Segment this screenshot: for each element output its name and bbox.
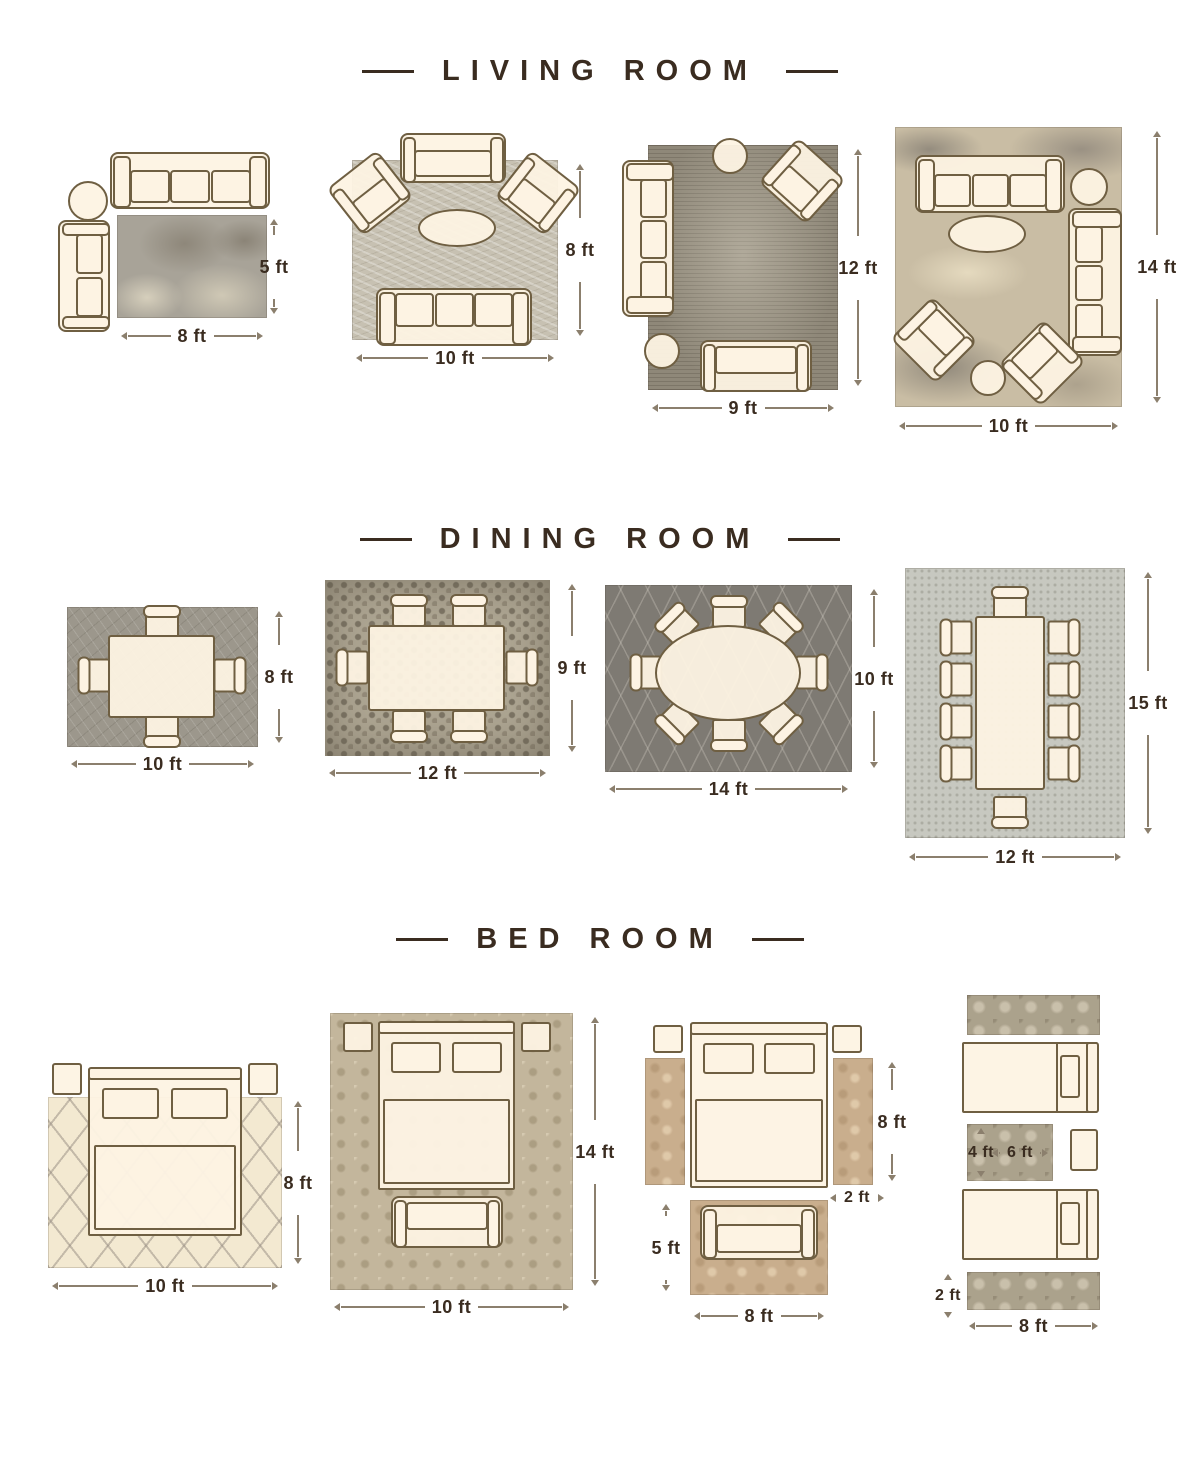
bed-room-section-title: BED ROOM <box>0 923 1200 956</box>
dining-table-icon <box>108 635 215 718</box>
chair-icon <box>452 710 486 737</box>
bed-room-layout-1: 8 ft 10 ft <box>40 1050 305 1302</box>
bench-icon <box>391 1196 503 1248</box>
round-side-table-icon <box>68 181 108 221</box>
title-dash <box>396 938 448 941</box>
loveseat-icon <box>700 340 812 392</box>
runner-rug-icon <box>833 1058 873 1185</box>
twin-bed-icon <box>962 1189 1098 1260</box>
sofa-3seat-icon <box>1068 208 1122 356</box>
rug-height-dimension: 8 ft <box>568 160 592 340</box>
chair-icon <box>946 621 973 655</box>
nightstand-icon <box>343 1022 373 1052</box>
nightstand-icon <box>832 1025 862 1053</box>
chair-icon <box>1048 747 1075 781</box>
rug-height-dimension: 14 ft <box>1145 127 1169 407</box>
runner-rug-icon <box>645 1058 685 1185</box>
oval-coffee-table-icon <box>948 215 1026 253</box>
rug-8x5-icon <box>117 215 267 318</box>
chair-icon <box>84 659 111 693</box>
bed-side-dimension: 8 ft <box>880 1058 904 1185</box>
runner-rug-icon <box>967 995 1100 1035</box>
title-dash <box>362 70 414 73</box>
bed-icon <box>88 1068 242 1236</box>
rug-width-dimension: 9 ft <box>648 397 838 419</box>
chair-icon <box>946 705 973 739</box>
rug-width-dimension: 10 ft <box>67 753 258 775</box>
section-title-text: DINING ROOM <box>440 523 761 556</box>
dining-table-icon <box>368 625 505 711</box>
between-rug-width-dimension: 6 ft <box>988 1142 1052 1164</box>
foot-rug-height-dimension: 5 ft <box>654 1200 678 1295</box>
chair-icon <box>392 600 426 627</box>
loveseat-icon <box>400 133 506 183</box>
title-dash <box>786 70 838 73</box>
sofa-3seat-icon <box>915 155 1065 213</box>
rug-width-dimension: 10 ft <box>895 415 1122 437</box>
bed-room-layout-2: 14 ft 10 ft <box>325 1000 610 1322</box>
chair-icon <box>993 796 1027 823</box>
chair-icon <box>342 651 369 685</box>
nightstand-icon <box>248 1063 278 1095</box>
chair-icon <box>392 710 426 737</box>
dining-table-icon <box>975 616 1045 790</box>
runner-width-dimension: 2 ft <box>826 1187 884 1209</box>
dining-room-layout-4: 15 ft 12 ft <box>900 558 1170 870</box>
sofa-3seat-icon <box>622 160 674 317</box>
dining-room-section-title: DINING ROOM <box>0 523 1200 556</box>
rug-width-dimension: 10 ft <box>48 1275 282 1297</box>
section-title-text: LIVING ROOM <box>442 55 758 88</box>
chair-icon <box>1048 705 1075 739</box>
title-dash <box>752 938 804 941</box>
rug-height-dimension: 8 ft <box>267 607 291 747</box>
rug-width-dimension: 10 ft <box>352 347 558 369</box>
rug-height-dimension: 12 ft <box>846 145 870 390</box>
rug-size-guide: LIVING ROOM 5 ft 8 ft 8 ft 10 ft 12 ft 9… <box>0 0 1200 1467</box>
dining-room-layout-3: 10 ft 14 ft <box>600 575 885 800</box>
rug-width-dimension: 8 ft <box>117 325 267 347</box>
rug-height-dimension: 15 ft <box>1136 568 1160 838</box>
settee-icon <box>700 1205 818 1260</box>
round-ottoman-icon <box>644 333 680 369</box>
nightstand-icon <box>1070 1129 1098 1171</box>
living-room-layout-4: 14 ft 10 ft <box>890 113 1185 448</box>
rug-height-dimension: 8 ft <box>286 1097 310 1268</box>
round-ottoman-icon <box>1070 168 1108 206</box>
bed-room-layout-4: 4 ft 6 ft 2 ft 8 ft <box>930 985 1175 1335</box>
chair-icon <box>712 719 746 746</box>
oval-dining-table-icon <box>655 625 801 721</box>
chair-icon <box>946 663 973 697</box>
sofa-3seat-icon <box>110 152 270 209</box>
rug-width-dimension: 14 ft <box>605 778 852 800</box>
rug-height-dimension: 10 ft <box>862 585 886 772</box>
chair-icon <box>1048 621 1075 655</box>
runner-width-dimension: 2 ft <box>936 1270 960 1312</box>
chair-icon <box>452 600 486 627</box>
chair-icon <box>145 611 179 638</box>
rug-width-dimension: 12 ft <box>905 846 1125 868</box>
nightstand-icon <box>521 1022 551 1052</box>
rug-height-dimension: 9 ft <box>560 580 584 756</box>
section-title-text: BED ROOM <box>476 923 724 956</box>
living-room-layout-1: 5 ft 8 ft <box>50 145 305 360</box>
dining-room-layout-1: 8 ft 10 ft <box>55 595 305 780</box>
nightstand-icon <box>653 1025 683 1053</box>
living-room-layout-2: 8 ft 10 ft <box>330 125 600 375</box>
sofa-3seat-icon <box>376 288 532 346</box>
title-dash <box>360 538 412 541</box>
nightstand-icon <box>52 1063 82 1095</box>
loveseat-icon <box>58 220 110 332</box>
chair-icon <box>145 715 179 742</box>
twin-bed-icon <box>962 1042 1098 1113</box>
round-ottoman-icon <box>712 138 748 174</box>
runner-length-dimension: 8 ft <box>965 1315 1102 1337</box>
chair-icon <box>1048 663 1075 697</box>
living-room-layout-3: 12 ft 9 ft <box>620 135 890 425</box>
bed-icon <box>690 1023 828 1188</box>
chair-icon <box>712 601 746 628</box>
rug-width-dimension: 10 ft <box>330 1296 573 1318</box>
bed-room-layout-3: 8 ft 2 ft 5 ft 8 ft <box>640 1015 905 1327</box>
living-room-section-title: LIVING ROOM <box>0 55 1200 88</box>
chair-icon <box>946 747 973 781</box>
chair-icon <box>993 592 1027 619</box>
foot-rug-width-dimension: 8 ft <box>690 1305 828 1327</box>
oval-coffee-table-icon <box>418 209 496 247</box>
chair-icon <box>506 651 533 685</box>
rug-height-dimension: 14 ft <box>583 1013 607 1290</box>
rug-height-dimension: 5 ft <box>262 215 286 318</box>
runner-rug-icon <box>967 1272 1100 1310</box>
rug-width-dimension: 12 ft <box>325 762 550 784</box>
title-dash <box>788 538 840 541</box>
dining-room-layout-2: 9 ft 12 ft <box>320 570 585 785</box>
bed-icon <box>378 1022 515 1190</box>
chair-icon <box>214 659 241 693</box>
